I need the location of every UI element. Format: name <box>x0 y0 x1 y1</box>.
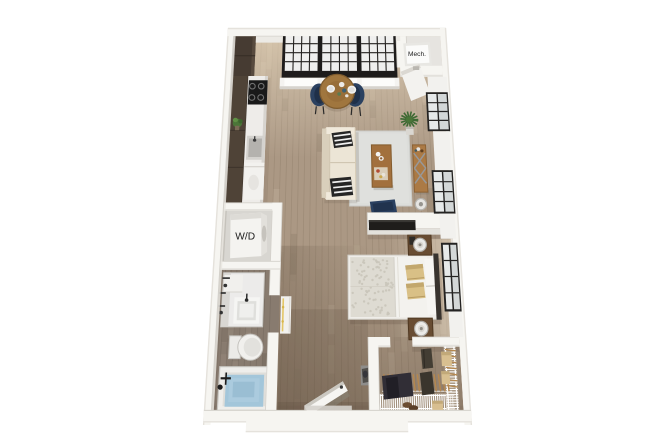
svg-text:Mech.: Mech. <box>408 51 426 58</box>
svg-text:W/D: W/D <box>235 232 255 243</box>
